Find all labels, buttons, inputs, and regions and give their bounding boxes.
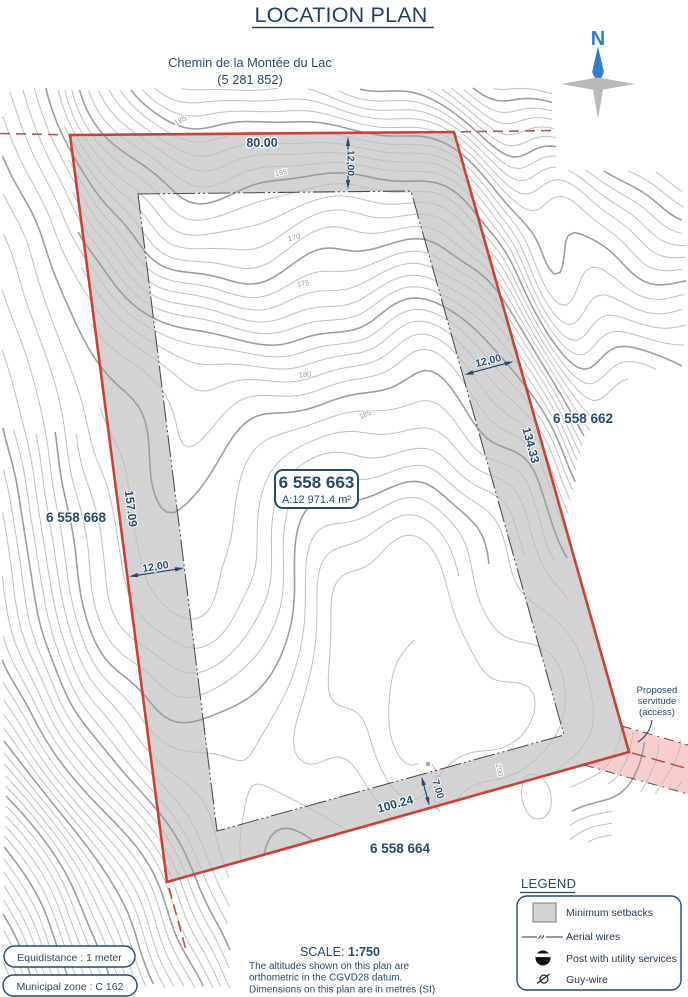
svg-text:6 558 668: 6 558 668 [46,510,107,525]
svg-text:SCALE: 1:750: SCALE: 1:750 [300,945,380,959]
svg-text:6 558 664: 6 558 664 [370,841,431,856]
svg-text:Municipal zone : C 162: Municipal zone : C 162 [17,981,124,993]
svg-text:175: 175 [296,278,310,289]
svg-text:Equidistance : 1 meter: Equidistance : 1 meter [17,952,122,964]
svg-text:A:12 971.4 m²: A:12 971.4 m² [282,494,351,506]
svg-text:Proposed: Proposed [637,685,678,696]
svg-text:Chemin de la Montée du Lac: Chemin de la Montée du Lac [168,55,332,70]
svg-text:80.00: 80.00 [246,136,277,150]
svg-text:servitude: servitude [638,696,677,707]
svg-text:LEGEND: LEGEND [521,876,576,891]
svg-text:12,00: 12,00 [345,150,357,176]
svg-text:Dimensions on this plan are in: Dimensions on this plan are in metres (S… [249,985,435,996]
svg-text:(5 281 852): (5 281 852) [217,72,282,87]
svg-text:orthometric in the CGVD28 datu: orthometric in the CGVD28 datum. [249,973,402,984]
svg-text:Post with utility services: Post with utility services [566,953,677,965]
svg-text:180: 180 [298,369,311,379]
svg-text:The altitudes shown on this pl: The altitudes shown on this plan are [249,961,410,972]
svg-text:(access): (access) [639,707,675,718]
svg-text:6 558 662: 6 558 662 [553,411,613,426]
svg-text:Guy-wire: Guy-wire [566,974,608,986]
svg-text:LOCATION PLAN: LOCATION PLAN [254,3,427,27]
svg-text:Minimum setbacks: Minimum setbacks [566,907,653,919]
svg-text:Aerial wires: Aerial wires [566,931,620,943]
svg-text:6 558 663: 6 558 663 [279,473,355,492]
